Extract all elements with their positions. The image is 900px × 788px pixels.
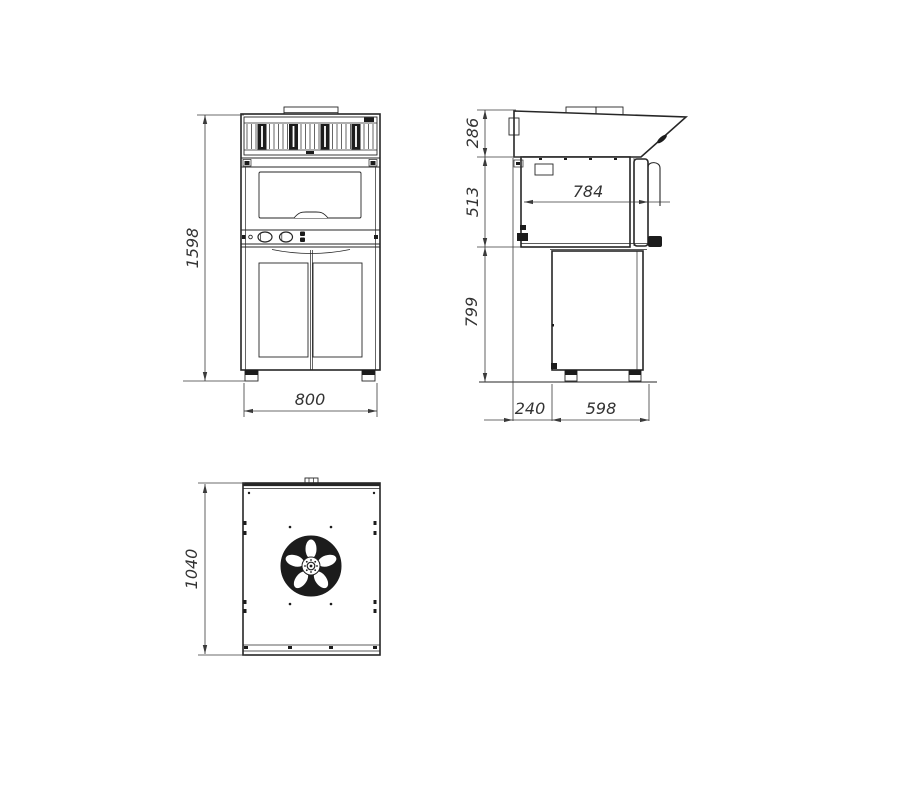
dimension-label-1040: 1040 (182, 549, 201, 590)
front-dimension-height: 1598 (183, 115, 246, 381)
side-view: 784 286 513 (462, 107, 686, 422)
dimension-label-598: 598 (586, 399, 617, 418)
dimension-label-240: 240 (515, 399, 546, 418)
fan-icon (282, 537, 340, 595)
technical-drawing: 1598 800 (0, 0, 900, 788)
front-feet (245, 370, 375, 381)
dimension-label-800: 800 (295, 390, 326, 409)
dimension-label-799: 799 (462, 297, 481, 328)
side-knob (648, 236, 662, 247)
dimension-label-286: 286 (463, 118, 482, 149)
side-hood (514, 111, 686, 157)
dimension-label-1598: 1598 (183, 228, 202, 269)
side-base-cabinet (550, 250, 647, 382)
dimension-label-784: 784 (573, 182, 604, 201)
side-door-handle (648, 163, 660, 206)
top-dimension-depth: 1040 (182, 483, 245, 655)
front-grille-badge (364, 118, 374, 123)
indicator-switch (300, 232, 305, 237)
indicator-switch (300, 238, 305, 243)
front-view: 1598 800 (183, 107, 380, 417)
oven-door-handle-bump (294, 212, 328, 218)
front-dimension-width: 800 (244, 383, 377, 417)
control-knob (258, 232, 272, 242)
dimension-label-513: 513 (463, 187, 482, 218)
top-view: 1040 (182, 478, 380, 655)
drawing-sheet: 1598 800 (0, 0, 900, 788)
